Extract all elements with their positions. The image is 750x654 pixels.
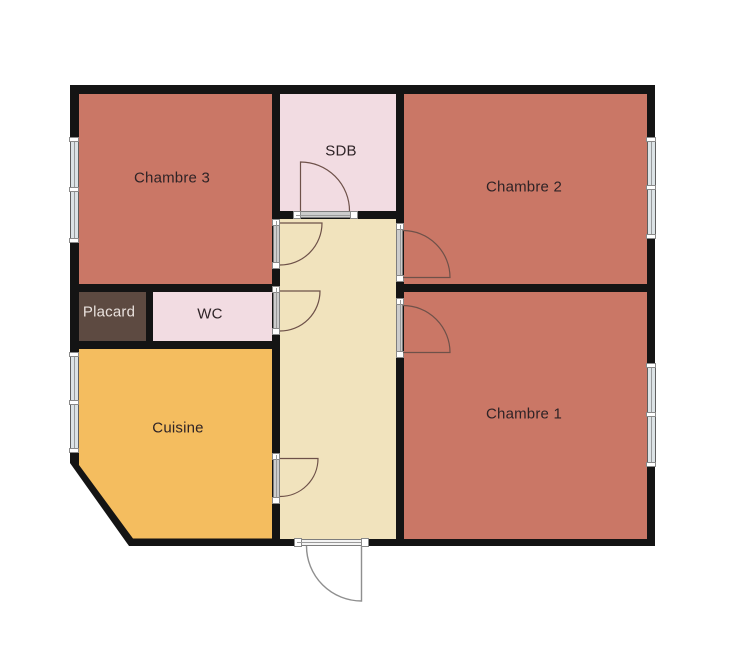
label-chambre-3: Chambre 3 [134, 170, 210, 187]
doorway-chambre-3 [273, 219, 280, 269]
doorway-wc [273, 286, 280, 335]
label-chambre-2: Chambre 2 [486, 179, 562, 196]
window-cuisine-icon [70, 352, 79, 453]
label-placard: Placard [83, 304, 135, 321]
label-cuisine: Cuisine [152, 420, 203, 437]
window-chambre-3-icon [70, 137, 79, 243]
door-arc-entrance [307, 546, 362, 601]
doorway-entrance [295, 539, 368, 547]
doorway-chambre-1 [396, 298, 403, 358]
window-chambre-2-icon [647, 137, 656, 239]
doorway-cuisine [273, 453, 280, 504]
window-chambre-1-icon [647, 363, 656, 467]
label-sdb: SDB [325, 143, 356, 160]
room-chambre-3 [79, 94, 272, 284]
label-wc: WC [197, 306, 222, 323]
floor-plan: Chambre 3 SDB Chambre 2 Chambre 1 Placar… [0, 0, 750, 654]
label-chambre-1: Chambre 1 [486, 406, 562, 423]
doorway-chambre-2 [396, 223, 403, 283]
room-couloir [280, 219, 396, 539]
doorway-sdb [294, 211, 357, 218]
